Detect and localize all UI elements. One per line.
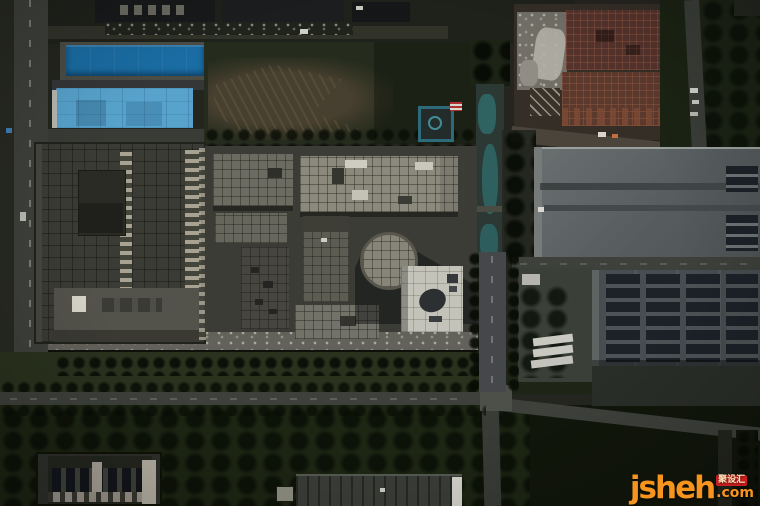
roof-ne-white-3 bbox=[352, 190, 368, 200]
top-material-pile bbox=[105, 22, 353, 35]
roof-ne-vent-2 bbox=[398, 196, 412, 204]
warehouse-white-dot bbox=[538, 207, 544, 212]
solar-wh-west-wall bbox=[592, 270, 599, 366]
rebar-void-2 bbox=[626, 45, 640, 55]
canal-teal-1 bbox=[478, 94, 496, 134]
car-right-road-1 bbox=[690, 88, 698, 93]
tower-wall-east bbox=[142, 460, 156, 504]
roof-w-tall-unit-2 bbox=[263, 281, 273, 288]
car-right-road-2 bbox=[692, 100, 699, 104]
rebar-grid-north bbox=[566, 10, 662, 70]
roof-ne-white-2 bbox=[415, 162, 433, 170]
bottom-small-hut bbox=[276, 486, 294, 502]
roof-w-tall-unit-1 bbox=[251, 267, 259, 273]
left-factory-south-yard bbox=[54, 288, 204, 342]
roof-w-tall-unit-4 bbox=[269, 309, 277, 314]
roof-nw-shadow bbox=[213, 206, 293, 211]
gray-warehouse-north bbox=[534, 147, 760, 257]
yard-dark-strip bbox=[54, 330, 204, 342]
white-roof-building bbox=[401, 266, 463, 332]
car-left-road bbox=[20, 212, 26, 221]
white-roof-unit-2 bbox=[449, 286, 457, 292]
canal-teal-2 bbox=[482, 144, 498, 214]
sheds-roofline bbox=[296, 474, 462, 476]
roof-nw bbox=[213, 154, 293, 206]
left-factory-block bbox=[34, 142, 206, 344]
construction-white-blob-2 bbox=[520, 60, 538, 86]
sheds-white-dot bbox=[380, 488, 385, 492]
warehouse-skylights-2 bbox=[726, 215, 758, 251]
solar-array-4 bbox=[726, 274, 758, 362]
roof-ne-white-1 bbox=[345, 160, 367, 168]
roof-center bbox=[303, 216, 349, 302]
light-blue-patch-1 bbox=[76, 100, 106, 126]
roof-ne-east-section bbox=[440, 156, 458, 212]
road-below-pools bbox=[48, 129, 206, 143]
watermark: jsheh 聚设汇 .com bbox=[630, 475, 754, 500]
white-roof-oval-dome bbox=[416, 285, 449, 316]
roof-center-white-dot bbox=[321, 238, 327, 242]
solar-array-2 bbox=[646, 274, 680, 362]
mid-east-strip bbox=[502, 130, 536, 260]
warehouse-skylights-1 bbox=[726, 166, 758, 192]
top-building-small bbox=[352, 2, 410, 22]
sheds-white-strip bbox=[452, 477, 462, 506]
warehouse-gable-2 bbox=[544, 205, 760, 211]
car-top-2 bbox=[356, 6, 363, 10]
left-factory-west-highlight bbox=[36, 144, 42, 342]
canal-north-trees bbox=[470, 40, 510, 86]
yard-white-hut bbox=[72, 296, 86, 312]
rebar-bright-rows bbox=[562, 108, 664, 126]
vertical-road-trees-west bbox=[467, 252, 479, 392]
white-roof-west-shade bbox=[401, 266, 408, 332]
garden-white-hut bbox=[522, 274, 540, 285]
roof-w-small bbox=[215, 213, 287, 243]
left-road-sign-blue bbox=[6, 128, 12, 133]
roof-ne-vent-1 bbox=[332, 168, 344, 184]
light-blue-patch-2 bbox=[126, 102, 162, 126]
white-roof-unit-3 bbox=[429, 316, 442, 322]
right-corner-block bbox=[734, 0, 760, 16]
road-south-tree-line bbox=[0, 404, 486, 416]
construction-scaffold bbox=[530, 88, 560, 116]
warehouse-road-dashes bbox=[520, 263, 755, 265]
roof-w-tall bbox=[241, 247, 289, 329]
south-road-west-dashes bbox=[10, 398, 470, 400]
watermark-tld: .com bbox=[716, 486, 754, 500]
top-building-west-units bbox=[120, 5, 190, 15]
vertical-road-dashes bbox=[491, 256, 493, 386]
watermark-brand: jsheh bbox=[630, 476, 714, 500]
yard-gray-units bbox=[102, 298, 162, 312]
truck-orange bbox=[612, 134, 618, 138]
bottom-left-tower bbox=[36, 452, 162, 506]
left-factory-courtyard bbox=[78, 170, 126, 236]
solar-array-1 bbox=[606, 274, 640, 362]
solar-panel-warehouse bbox=[592, 270, 760, 366]
car-top-road bbox=[300, 29, 308, 34]
roof-center-dark-top bbox=[303, 216, 349, 232]
red-white-stripe-box bbox=[450, 102, 462, 111]
solar-wh-south-yard bbox=[592, 366, 760, 406]
roof-w-tall-unit-3 bbox=[255, 299, 263, 305]
garden-yard bbox=[518, 268, 592, 382]
courtyard-shadow bbox=[79, 203, 123, 233]
right-green-top-trees bbox=[700, 0, 760, 150]
vertical-road-trees-east bbox=[506, 252, 519, 392]
tower-wall-south bbox=[48, 492, 152, 502]
solar-array-3 bbox=[686, 274, 720, 362]
car-right-road-3 bbox=[690, 112, 698, 116]
roof-nw-vent bbox=[268, 168, 282, 178]
watermark-right-block: 聚设汇 .com bbox=[716, 475, 754, 500]
dark-blue-pool-roof bbox=[66, 45, 204, 76]
south-road-down bbox=[482, 404, 502, 506]
warehouse-west-wall bbox=[534, 147, 542, 257]
roof-ne-large bbox=[300, 156, 458, 212]
green-band-1-trees bbox=[55, 356, 485, 376]
rebar-void-1 bbox=[596, 30, 614, 42]
white-roof-unit-1 bbox=[447, 274, 458, 283]
roof-s-vent bbox=[340, 316, 356, 326]
bottom-center-sheds bbox=[296, 474, 462, 506]
pavilion-circle bbox=[428, 116, 442, 130]
center-complex bbox=[205, 146, 477, 332]
light-blue-west-edge bbox=[52, 90, 57, 128]
truck-white bbox=[598, 132, 606, 137]
tower-wall-center bbox=[92, 462, 102, 492]
aerial-photo: jsheh 聚设汇 .com bbox=[0, 0, 760, 506]
warehouse-top-edge bbox=[534, 147, 760, 149]
